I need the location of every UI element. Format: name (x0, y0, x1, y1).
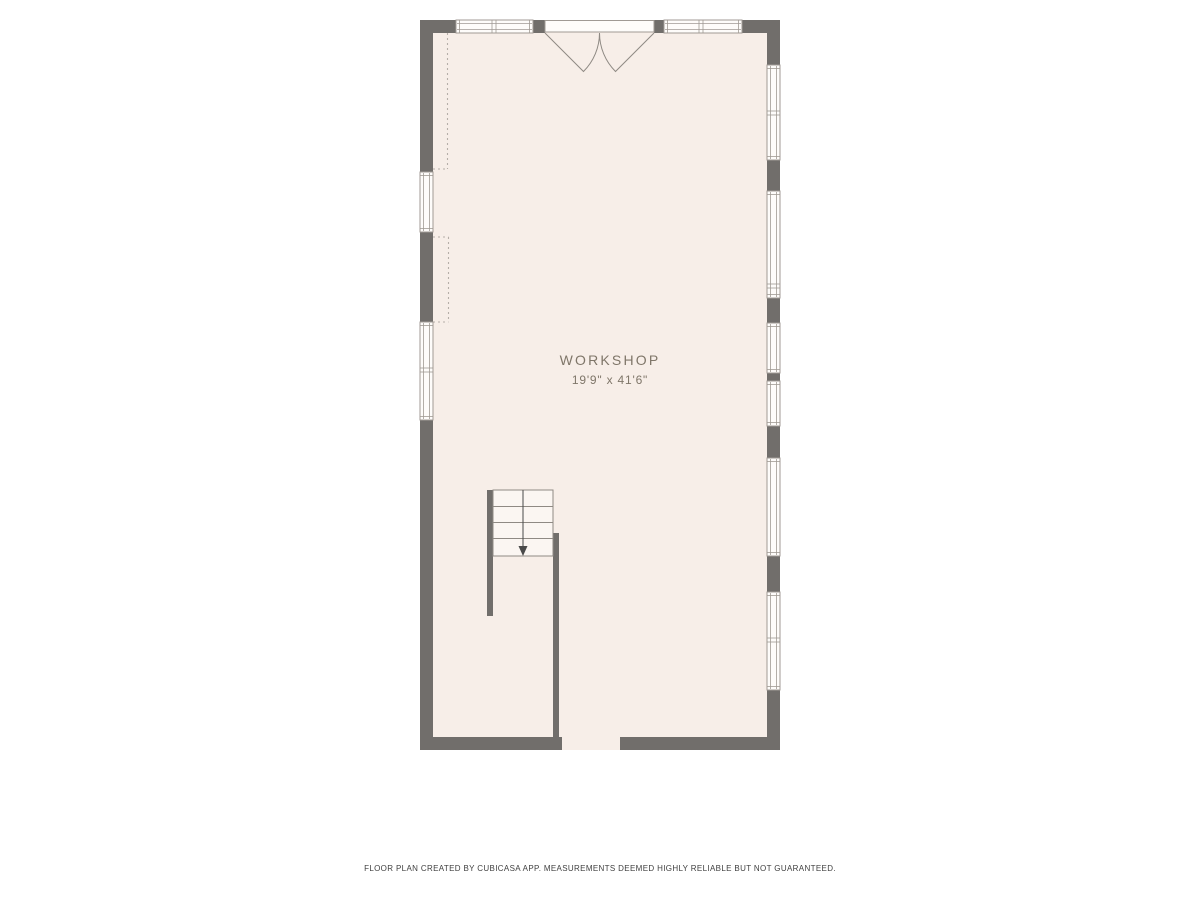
wall-segment (767, 373, 780, 381)
wall-segment (654, 20, 664, 33)
window (767, 323, 780, 373)
wall-segment (420, 420, 433, 750)
window (420, 322, 433, 420)
window (767, 65, 780, 160)
wall-segment (767, 160, 780, 191)
wall-segment (553, 533, 559, 737)
wall-segment (767, 20, 780, 65)
window (767, 458, 780, 556)
wall-segment (487, 490, 493, 616)
window (420, 172, 433, 232)
wall-segment (767, 556, 780, 592)
wall-segment (533, 20, 545, 33)
wall-segment (767, 426, 780, 458)
floor-plan-drawing (0, 0, 1200, 900)
wall-segment (420, 232, 433, 322)
window (767, 191, 780, 298)
window (767, 592, 780, 690)
wall-segment (420, 20, 433, 172)
window (767, 381, 780, 426)
door-opening (545, 21, 654, 33)
floor-plan-page: WORKSHOP 19'9" x 41'6" FLOOR PLAN CREATE… (0, 0, 1200, 900)
wall-segment (620, 737, 780, 750)
wall-segment (420, 737, 562, 750)
wall-segment (767, 298, 780, 323)
window (456, 20, 533, 33)
floor (420, 20, 780, 750)
